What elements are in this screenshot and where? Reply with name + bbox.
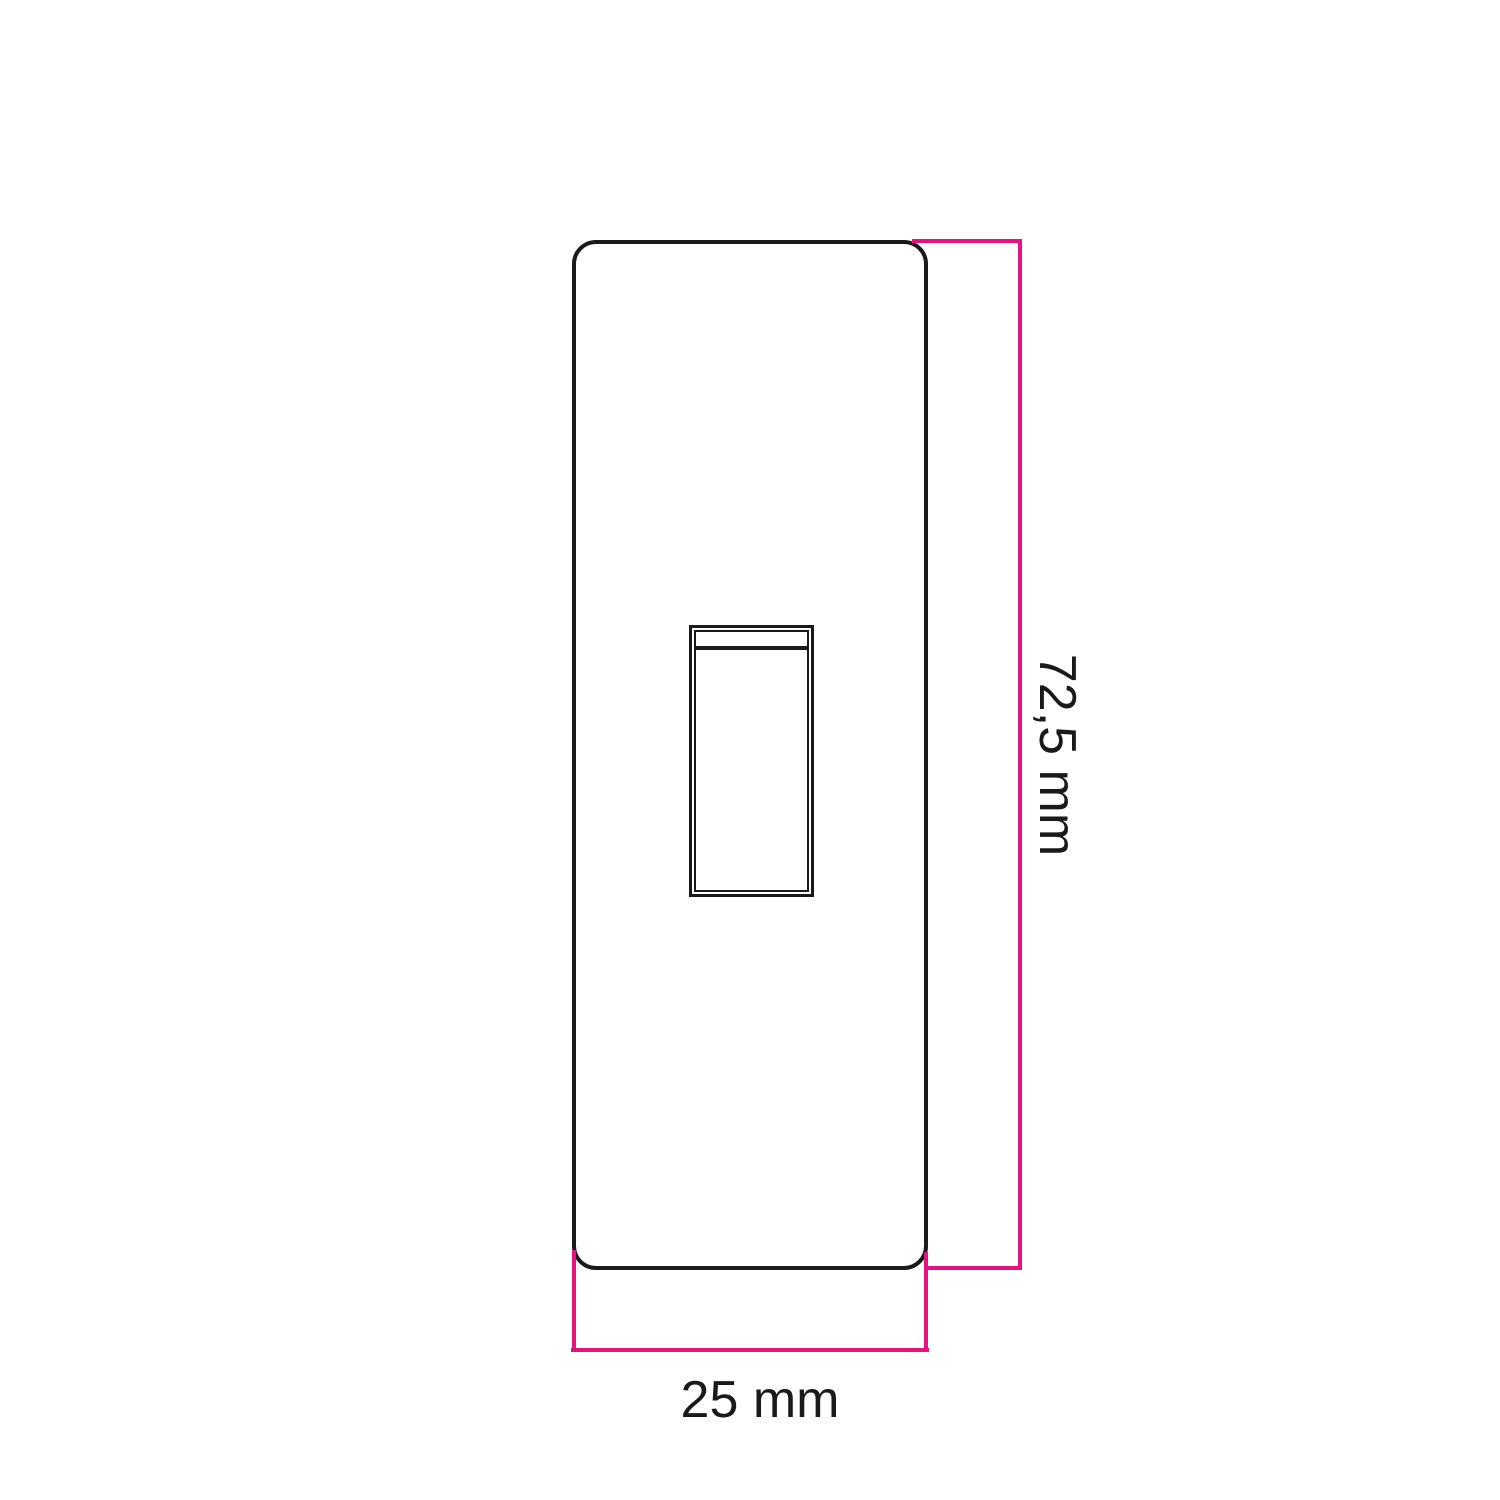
- width-extension-line-left: [572, 1250, 576, 1352]
- height-dimension-line: [1018, 239, 1022, 1270]
- height-dimension-label: 72,5 mm: [1031, 654, 1083, 856]
- width-dimension-label: 25 mm: [681, 1374, 840, 1426]
- width-dimension-line: [571, 1348, 929, 1352]
- height-extension-line-bottom: [924, 1266, 1022, 1270]
- rocker-switch-top-edge-line: [694, 646, 809, 650]
- width-extension-line-right: [924, 1252, 928, 1352]
- height-extension-line-top: [912, 239, 1022, 243]
- dimension-drawing-canvas: 72,5 mm 25 mm: [0, 0, 1500, 1500]
- rocker-switch-inner-frame: [694, 630, 809, 892]
